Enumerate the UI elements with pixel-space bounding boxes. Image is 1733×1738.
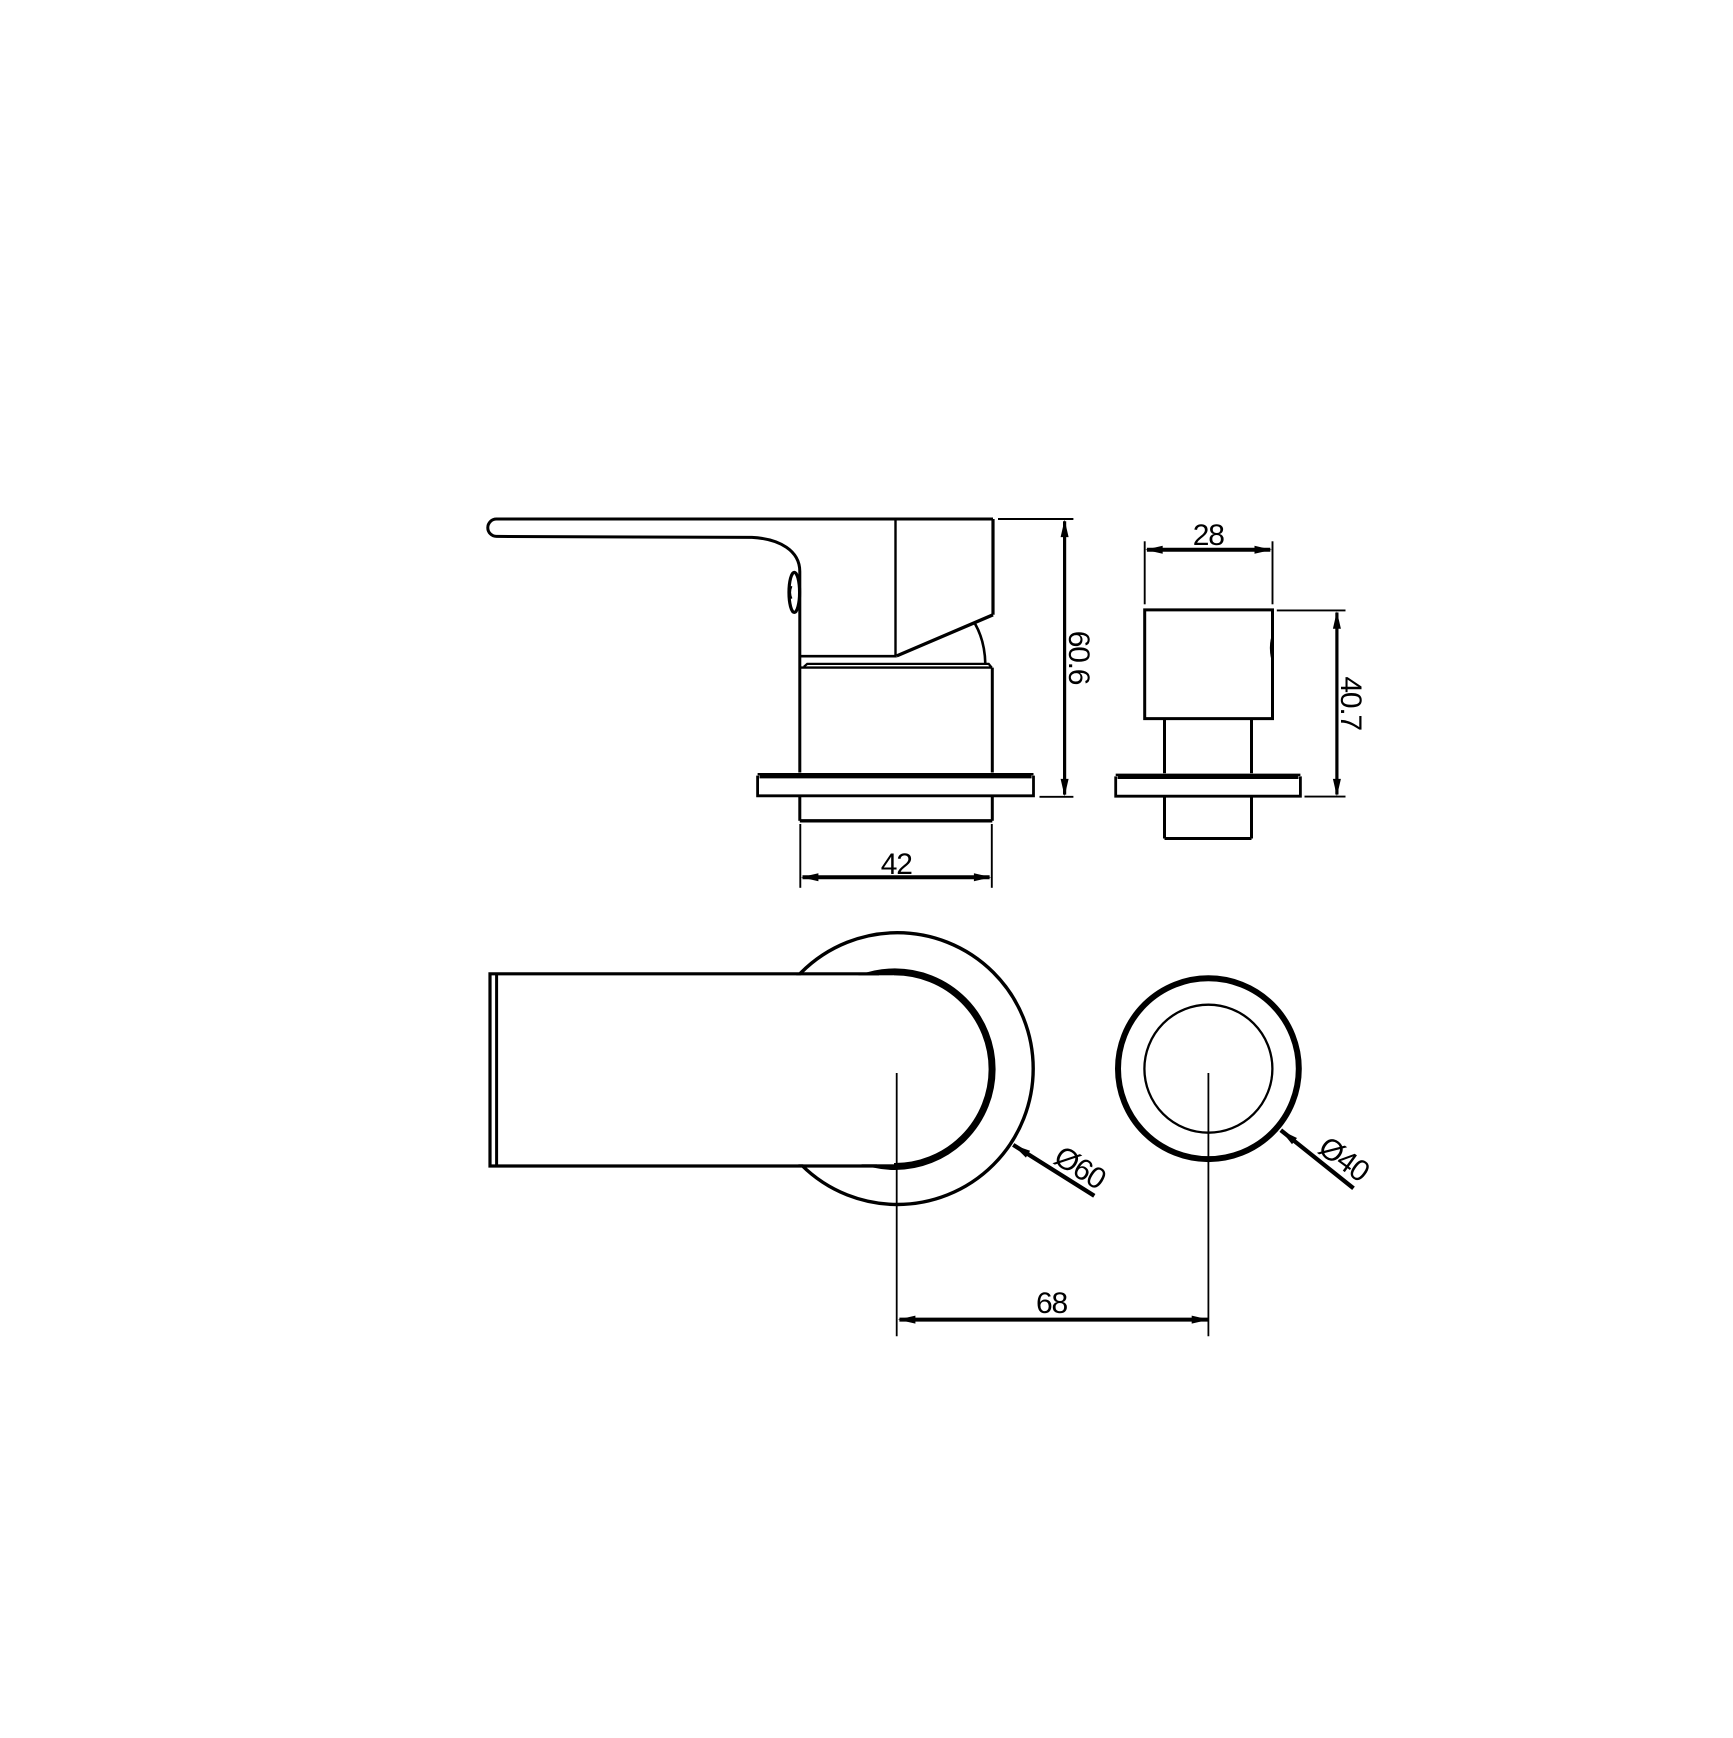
svg-text:60.6: 60.6 <box>1062 631 1095 685</box>
svg-text:28: 28 <box>1193 519 1224 552</box>
svg-text:68: 68 <box>1036 1287 1067 1320</box>
svg-text:40.7: 40.7 <box>1334 676 1367 730</box>
svg-text:42: 42 <box>881 848 912 881</box>
